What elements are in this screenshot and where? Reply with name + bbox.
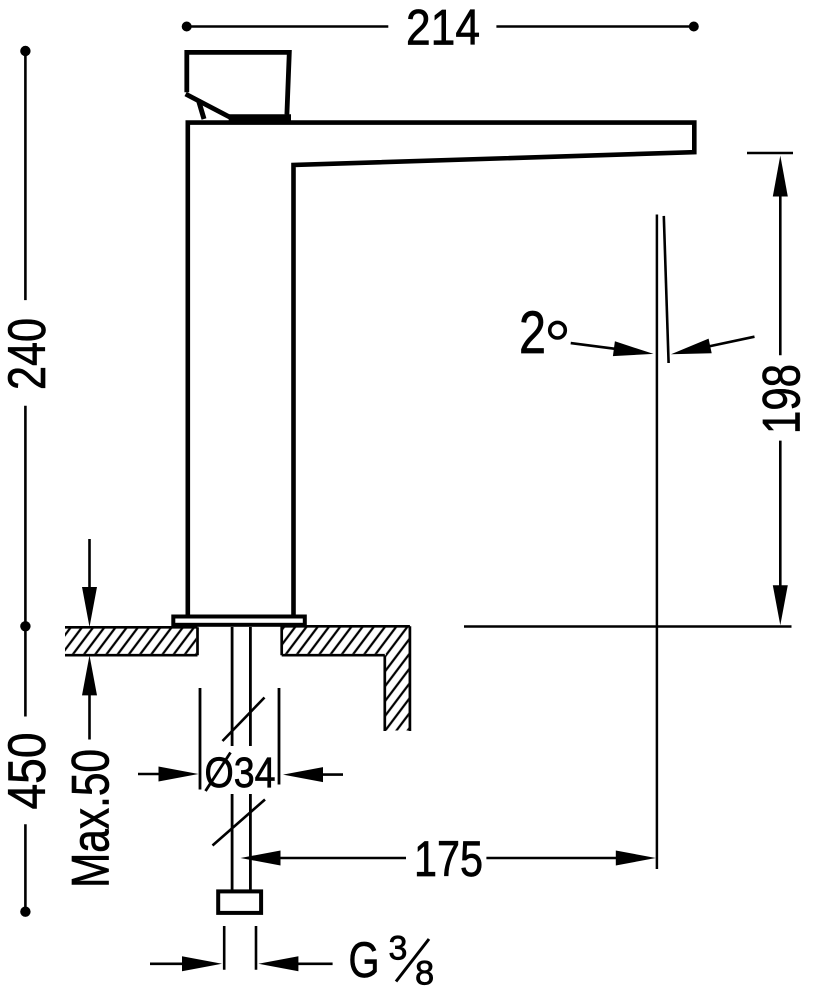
svg-text:450: 450 — [0, 733, 57, 810]
svg-text:3: 3 — [389, 930, 408, 968]
svg-text:198: 198 — [753, 364, 812, 434]
svg-text:Max.50: Max.50 — [61, 749, 120, 888]
svg-text:214: 214 — [406, 0, 480, 56]
svg-text:8: 8 — [415, 955, 434, 993]
svg-text:G: G — [349, 931, 380, 988]
svg-text:O34: O34 — [205, 749, 276, 797]
svg-text:2: 2 — [519, 299, 546, 366]
svg-text:175: 175 — [414, 831, 483, 887]
svg-text:240: 240 — [0, 318, 57, 390]
